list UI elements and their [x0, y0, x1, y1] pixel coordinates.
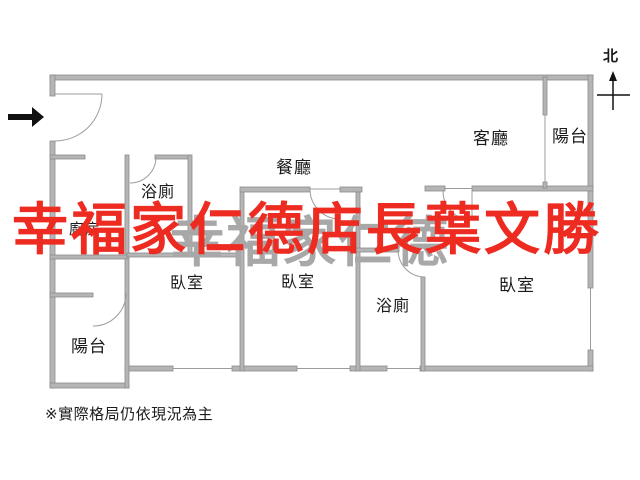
- compass-north-icon: [597, 71, 630, 110]
- compass-north-label: 北: [603, 49, 619, 64]
- room-label-bedroom-middle: 臥室: [281, 275, 315, 291]
- bath1-door-arc: [130, 157, 156, 183]
- balcony-door-arc: [93, 293, 126, 326]
- red-watermark-text: 幸福家仁德店長葉文勝: [12, 202, 602, 258]
- room-label-bath-lower: 浴廁: [376, 299, 410, 315]
- room-label-bedroom-right: 臥室: [499, 277, 535, 294]
- disclaimer-note: ※實際格局仍依現況為主: [45, 407, 213, 422]
- entrance-door-arc: [55, 94, 102, 141]
- room-label-balcony-top-right: 陽台: [552, 128, 588, 145]
- room-label-balcony-bottom-left: 陽台: [71, 338, 107, 355]
- room-label-living: 客廳: [473, 130, 509, 147]
- entrance-arrow-icon: [8, 107, 44, 127]
- floor-plan-canvas: 客廳 陽台 餐廳 浴廁 廚房 臥室 臥室 浴廁 臥室 陽台 北 幸福家仁德 幸福…: [0, 0, 640, 480]
- room-label-dining: 餐廳: [276, 159, 312, 176]
- room-label-bedroom-left: 臥室: [170, 276, 204, 292]
